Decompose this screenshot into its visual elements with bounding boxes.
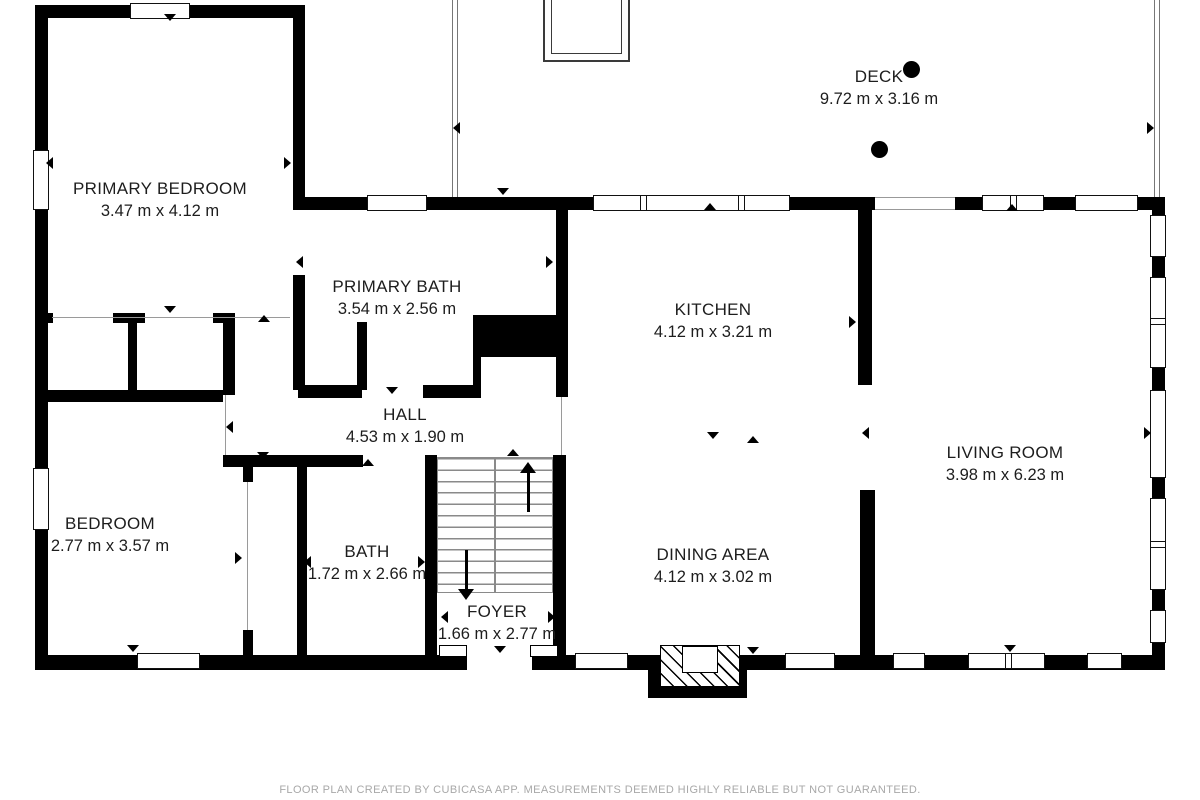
door-arrow-icon — [164, 306, 176, 313]
room-label-bedroom: BEDROOM 2.77 m x 3.57 m — [51, 512, 169, 558]
door-arrow-icon — [331, 201, 343, 208]
window — [785, 653, 835, 669]
door-arrow-icon — [1147, 122, 1154, 134]
room-name: BATH — [308, 540, 426, 563]
wall-exterior-left — [35, 5, 48, 670]
room-dimensions: 9.72 m x 3.16 m — [820, 88, 938, 111]
door-arrow-icon — [497, 188, 509, 195]
window-mullion — [738, 196, 745, 210]
door-arrow-icon — [284, 157, 291, 169]
door-arrow-icon — [546, 256, 553, 268]
window — [1075, 195, 1138, 211]
wall-dining-living-divider — [860, 490, 875, 655]
closet-opening-line — [52, 317, 290, 318]
room-dimensions: 3.98 m x 6.23 m — [946, 464, 1064, 487]
kitchen-door-line — [561, 397, 562, 455]
door-arrow-icon — [862, 427, 869, 439]
door-arrow-icon — [362, 459, 374, 466]
window-mullion — [1151, 318, 1165, 325]
chimney-block — [473, 315, 557, 357]
door-arrow-icon — [557, 316, 564, 328]
room-name: PRIMARY BATH — [332, 275, 461, 298]
window — [130, 3, 190, 19]
wall-kitchen-living-divider — [858, 210, 872, 385]
wall-hall-bottom — [223, 455, 363, 467]
wall-primary-bath-bottom-b — [423, 385, 480, 398]
room-name: PRIMARY BEDROOM — [73, 177, 247, 200]
wall-primary-bath-stub — [357, 322, 367, 390]
front-door-jamb — [439, 645, 467, 657]
room-name: KITCHEN — [654, 298, 772, 321]
window — [1150, 390, 1166, 478]
window — [1150, 215, 1166, 257]
window — [137, 653, 200, 669]
window — [367, 195, 427, 211]
window — [33, 468, 49, 530]
room-dimensions: 2.77 m x 3.57 m — [51, 535, 169, 558]
window — [1087, 653, 1122, 669]
front-door-jamb — [530, 645, 558, 657]
wall-primary-bath-bottom-a — [298, 385, 362, 398]
stairs-up-arrow — [527, 472, 530, 512]
window-mullion — [1151, 541, 1165, 548]
room-label-foyer: FOYER 1.66 m x 2.77 m — [438, 600, 556, 646]
door-arrow-icon — [296, 256, 303, 268]
door-arrow-icon — [747, 647, 759, 654]
window — [575, 653, 628, 669]
room-name: HALL — [346, 403, 464, 426]
window — [1150, 498, 1166, 590]
room-name: DINING AREA — [654, 543, 772, 566]
door-arrow-icon — [1144, 427, 1151, 439]
door-arrow-icon — [226, 421, 233, 433]
wall-bedroom-right-stub-top — [243, 467, 253, 482]
wall-primary-bath-left — [293, 275, 305, 390]
disclaimer-text: FLOOR PLAN CREATED BY CUBICASA APP. MEAS… — [0, 784, 1200, 796]
door-arrow-icon — [453, 122, 460, 134]
room-label-deck: DECK 9.72 m x 3.16 m — [820, 65, 938, 111]
door-arrow-icon — [257, 452, 269, 459]
door-arrow-icon — [40, 552, 47, 564]
door-arrow-icon — [46, 157, 53, 169]
deck-right-rail — [1154, 0, 1160, 197]
window — [1150, 277, 1166, 368]
stairs-down-arrow — [465, 550, 468, 590]
wall-closet-divider — [128, 322, 137, 392]
fireplace-firebox — [682, 646, 718, 673]
window — [1150, 610, 1166, 643]
room-name: BEDROOM — [51, 512, 169, 535]
wall-kitchen-left — [556, 210, 568, 397]
room-name: LIVING ROOM — [946, 441, 1064, 464]
deck-post-dot — [871, 141, 888, 158]
room-label-hall: HALL 4.53 m x 1.90 m — [346, 403, 464, 449]
door-arrow-icon — [494, 646, 506, 653]
door-arrow-icon — [849, 316, 856, 328]
door-arrow-icon — [707, 432, 719, 439]
window-mullion — [640, 196, 647, 210]
room-dimensions: 1.66 m x 2.77 m — [438, 623, 556, 646]
window — [593, 195, 790, 211]
room-label-bath: BATH 1.72 m x 2.66 m — [308, 540, 426, 586]
room-label-primary-bath: PRIMARY BATH 3.54 m x 2.56 m — [332, 275, 461, 321]
room-name: FOYER — [438, 600, 556, 623]
sliding-door — [875, 197, 955, 210]
deck-stairs-inner-outline — [551, 0, 622, 54]
front-door-opening — [467, 655, 532, 670]
wall-closet-right — [223, 313, 235, 395]
room-label-living-room: LIVING ROOM 3.98 m x 6.23 m — [946, 441, 1064, 487]
window-mullion — [1005, 654, 1012, 668]
window — [893, 653, 925, 669]
room-dimensions: 4.12 m x 3.02 m — [654, 566, 772, 589]
room-dimensions: 4.12 m x 3.21 m — [654, 321, 772, 344]
wall-bath-right-stairs-left — [425, 455, 437, 655]
room-label-primary-bedroom: PRIMARY BEDROOM 3.47 m x 4.12 m — [73, 177, 247, 223]
door-arrow-icon — [131, 394, 143, 401]
door-arrow-icon — [386, 387, 398, 394]
door-arrow-icon — [507, 449, 519, 456]
wall-primary-bedroom-right — [293, 5, 305, 210]
room-dimensions: 1.72 m x 2.66 m — [308, 563, 426, 586]
door-arrow-icon — [127, 645, 139, 652]
door-arrow-icon — [164, 14, 176, 21]
door-arrow-icon — [747, 436, 759, 443]
door-arrow-icon — [258, 315, 270, 322]
door-arrow-icon — [1006, 204, 1018, 211]
room-dimensions: 4.53 m x 1.90 m — [346, 426, 464, 449]
room-dimensions: 3.54 m x 2.56 m — [332, 298, 461, 321]
room-name: DECK — [820, 65, 938, 88]
door-arrow-icon — [704, 203, 716, 210]
door-arrow-icon — [1004, 645, 1016, 652]
room-label-kitchen: KITCHEN 4.12 m x 3.21 m — [654, 298, 772, 344]
room-dimensions: 3.47 m x 4.12 m — [73, 200, 247, 223]
stairs-up-arrow-head-icon — [520, 462, 536, 473]
door-arrow-icon — [235, 552, 242, 564]
bedroom-bath-opening-line — [247, 482, 248, 630]
stairs-right-flight — [495, 457, 553, 593]
stairs-down-arrow-head-icon — [458, 589, 474, 600]
deck-left-rail — [452, 0, 458, 197]
wall-bedroom-right-stub-bottom — [243, 630, 253, 657]
floor-plan: PRIMARY BEDROOM 3.47 m x 4.12 m PRIMARY … — [0, 0, 1200, 800]
window — [968, 653, 1045, 669]
closet-stub-a — [43, 313, 53, 323]
room-label-dining-area: DINING AREA 4.12 m x 3.02 m — [654, 543, 772, 589]
